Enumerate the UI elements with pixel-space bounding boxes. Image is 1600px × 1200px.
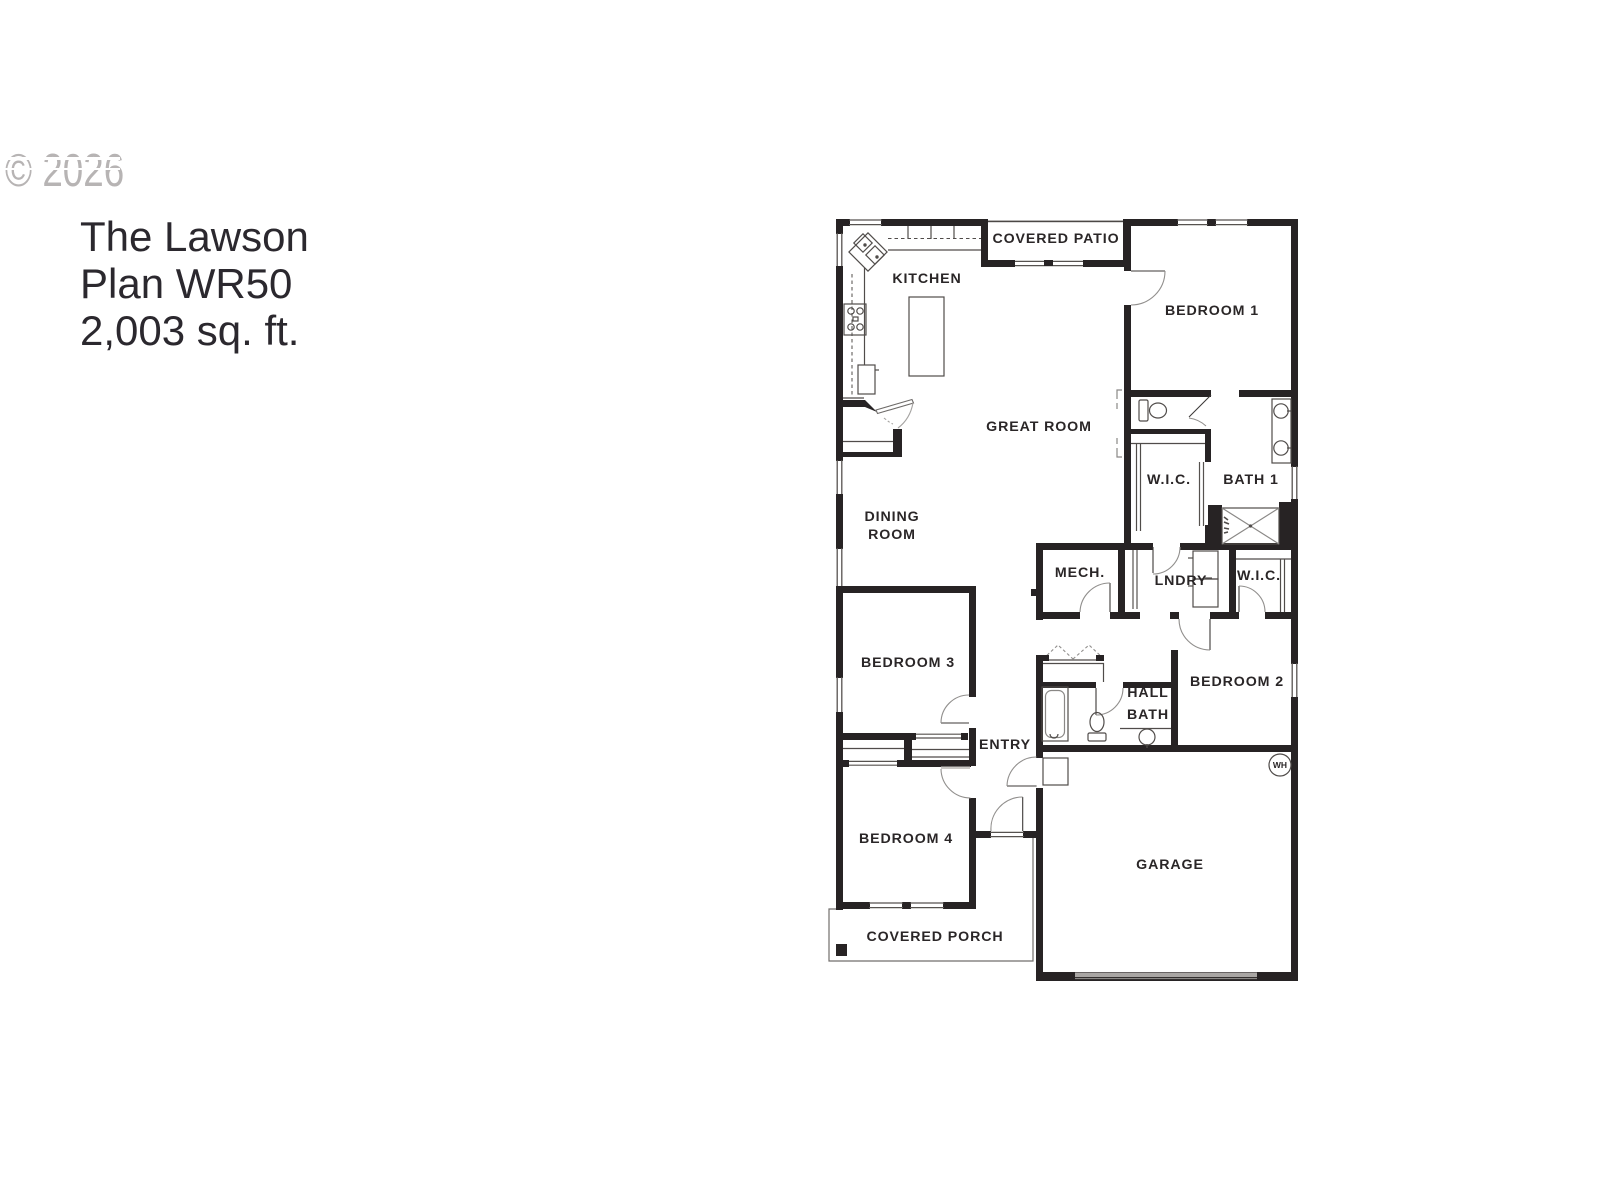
svg-text:ENTRY: ENTRY (979, 737, 1031, 753)
svg-text:BEDROOM 2: BEDROOM 2 (1190, 674, 1284, 690)
svg-text:BATH 1: BATH 1 (1223, 472, 1279, 488)
svg-text:GREAT ROOM: GREAT ROOM (986, 419, 1092, 435)
svg-text:W.I.C.: W.I.C. (1147, 472, 1191, 488)
svg-text:HALL: HALL (1127, 685, 1168, 701)
svg-text:WH: WH (1273, 760, 1287, 770)
svg-text:MECH.: MECH. (1055, 565, 1105, 581)
svg-text:LNDRY: LNDRY (1155, 573, 1208, 589)
svg-text:BEDROOM 3: BEDROOM 3 (861, 655, 955, 671)
svg-text:BATH: BATH (1127, 707, 1169, 723)
svg-text:COVERED PORCH: COVERED PORCH (866, 929, 1003, 945)
svg-text:BEDROOM 1: BEDROOM 1 (1165, 303, 1259, 319)
svg-text:ROOM: ROOM (868, 527, 916, 543)
svg-text:W.I.C.: W.I.C. (1237, 568, 1281, 584)
svg-text:COVERED PATIO: COVERED PATIO (992, 231, 1119, 247)
svg-text:KITCHEN: KITCHEN (892, 271, 961, 287)
svg-text:DINING: DINING (864, 509, 919, 525)
svg-text:BEDROOM 4: BEDROOM 4 (859, 831, 953, 847)
svg-text:GARAGE: GARAGE (1136, 857, 1204, 873)
